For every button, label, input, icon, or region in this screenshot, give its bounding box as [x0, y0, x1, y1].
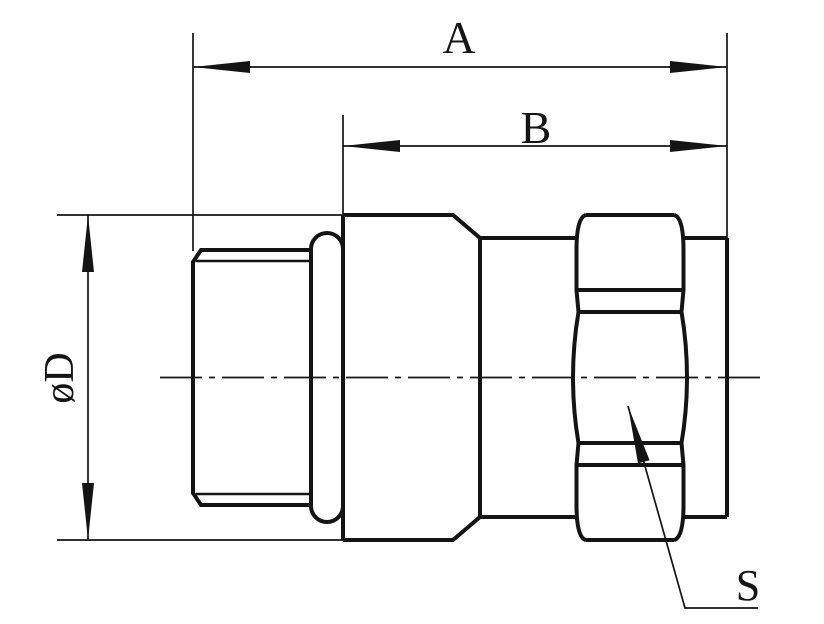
dim-a-arrow-right-icon	[670, 61, 727, 73]
leader-s-label: S	[736, 561, 760, 610]
connector-technical-drawing: A B øD	[0, 0, 824, 624]
dim-d-arrow-up-icon	[82, 215, 94, 272]
dim-d-label: øD	[37, 352, 83, 403]
dim-b-label: B	[521, 102, 552, 153]
dim-a-arrow-left-icon	[193, 61, 250, 73]
dim-d-arrow-down-icon	[82, 483, 94, 540]
dimension-b: B	[343, 102, 727, 214]
dim-b-arrow-right-icon	[670, 140, 727, 152]
drawing-page: A B øD	[0, 0, 824, 624]
dim-a-label: A	[442, 12, 475, 63]
dim-b-arrow-left-icon	[343, 140, 400, 152]
